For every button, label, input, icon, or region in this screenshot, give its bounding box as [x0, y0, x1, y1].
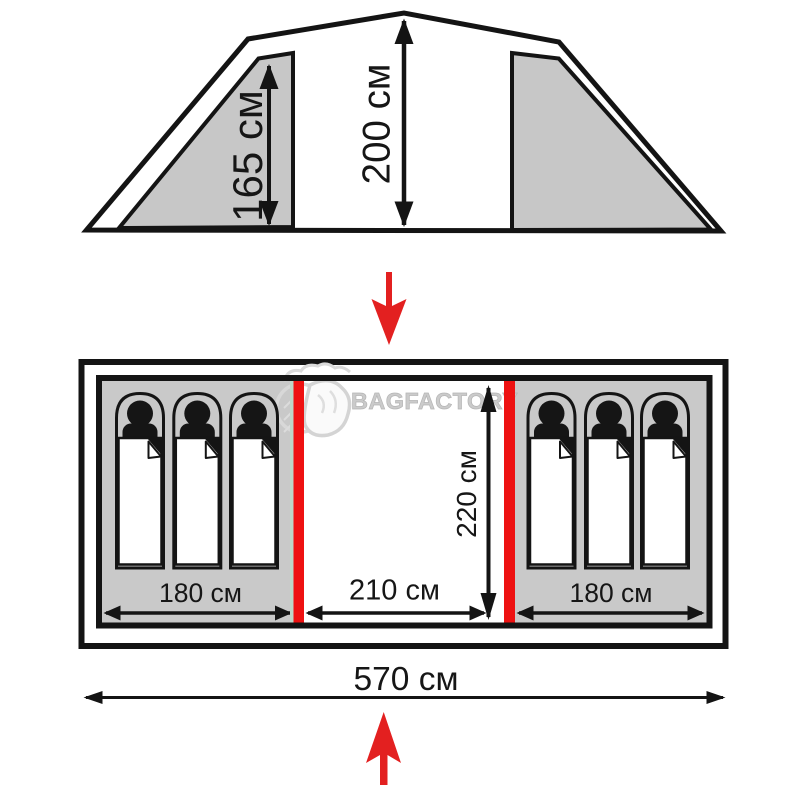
svg-text:165 см: 165 см — [224, 90, 271, 222]
svg-text:180 см: 180 см — [159, 578, 242, 608]
svg-text:210 см: 210 см — [349, 575, 440, 607]
svg-text:200 см: 200 см — [356, 64, 399, 185]
svg-text:570 см: 570 см — [354, 661, 459, 698]
svg-text:180 см: 180 см — [569, 578, 652, 608]
svg-text:220 см: 220 см — [451, 450, 482, 538]
